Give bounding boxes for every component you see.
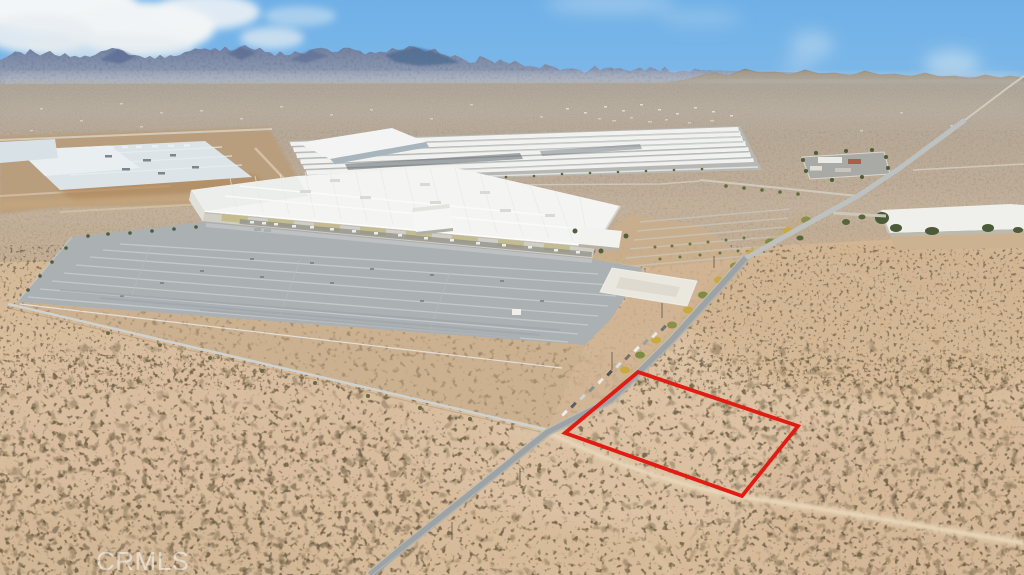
svg-text:CRMLS: CRMLS xyxy=(96,546,190,575)
